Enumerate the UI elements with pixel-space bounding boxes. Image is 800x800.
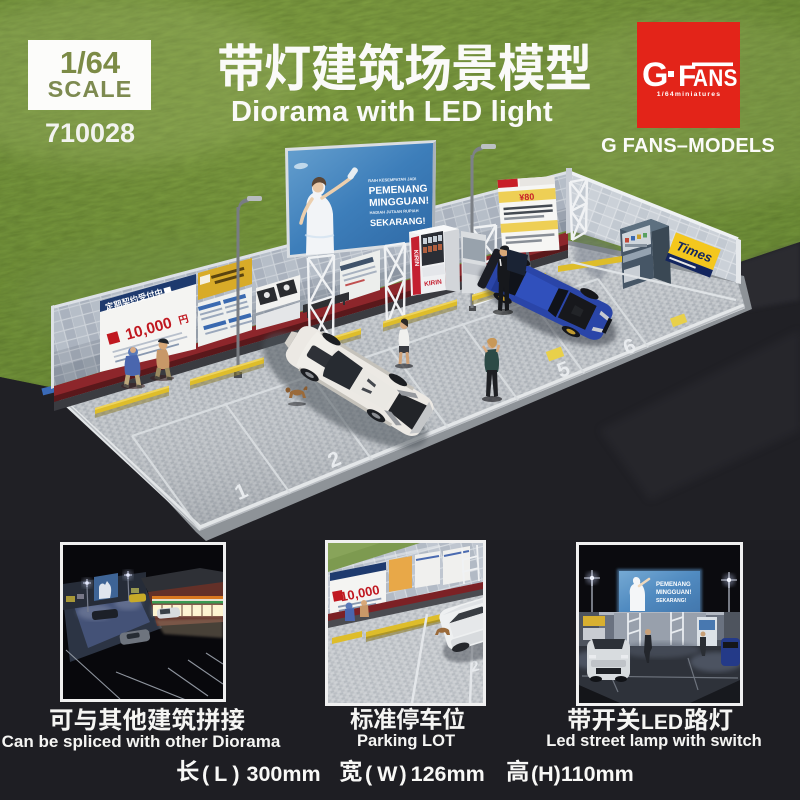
svg-text:KIRIN: KIRIN xyxy=(412,250,419,267)
svg-text:G FANS–MODELS: G FANS–MODELS xyxy=(601,135,775,157)
svg-text:(L)300mm: (L)300mm xyxy=(202,762,321,786)
svg-text:SCALE: SCALE xyxy=(48,76,133,102)
svg-text:LED: LED xyxy=(641,711,683,734)
svg-text:Can be spliced with other Dior: Can be spliced with other Diorama xyxy=(2,732,281,751)
svg-text:Diorama with LED light: Diorama with LED light xyxy=(231,96,553,128)
svg-text:¥80: ¥80 xyxy=(519,192,535,203)
svg-text:Parking LOT: Parking LOT xyxy=(357,732,455,750)
svg-text:1/64miniatures: 1/64miniatures xyxy=(657,91,721,98)
svg-text:G: G xyxy=(642,56,668,94)
svg-text:MINGGUAN!: MINGGUAN! xyxy=(656,590,691,596)
svg-text:710028: 710028 xyxy=(45,118,135,148)
svg-text:PEMENANG: PEMENANG xyxy=(656,582,691,588)
svg-text:ANS: ANS xyxy=(693,65,738,92)
svg-text:(H)110mm: (H)110mm xyxy=(531,762,634,786)
svg-text:1/64: 1/64 xyxy=(60,45,121,80)
svg-text:Led street lamp with switch: Led street lamp with switch xyxy=(546,732,761,750)
svg-text:SEKARANG!: SEKARANG! xyxy=(656,598,687,604)
svg-text:(W)126mm: (W)126mm xyxy=(365,762,485,786)
